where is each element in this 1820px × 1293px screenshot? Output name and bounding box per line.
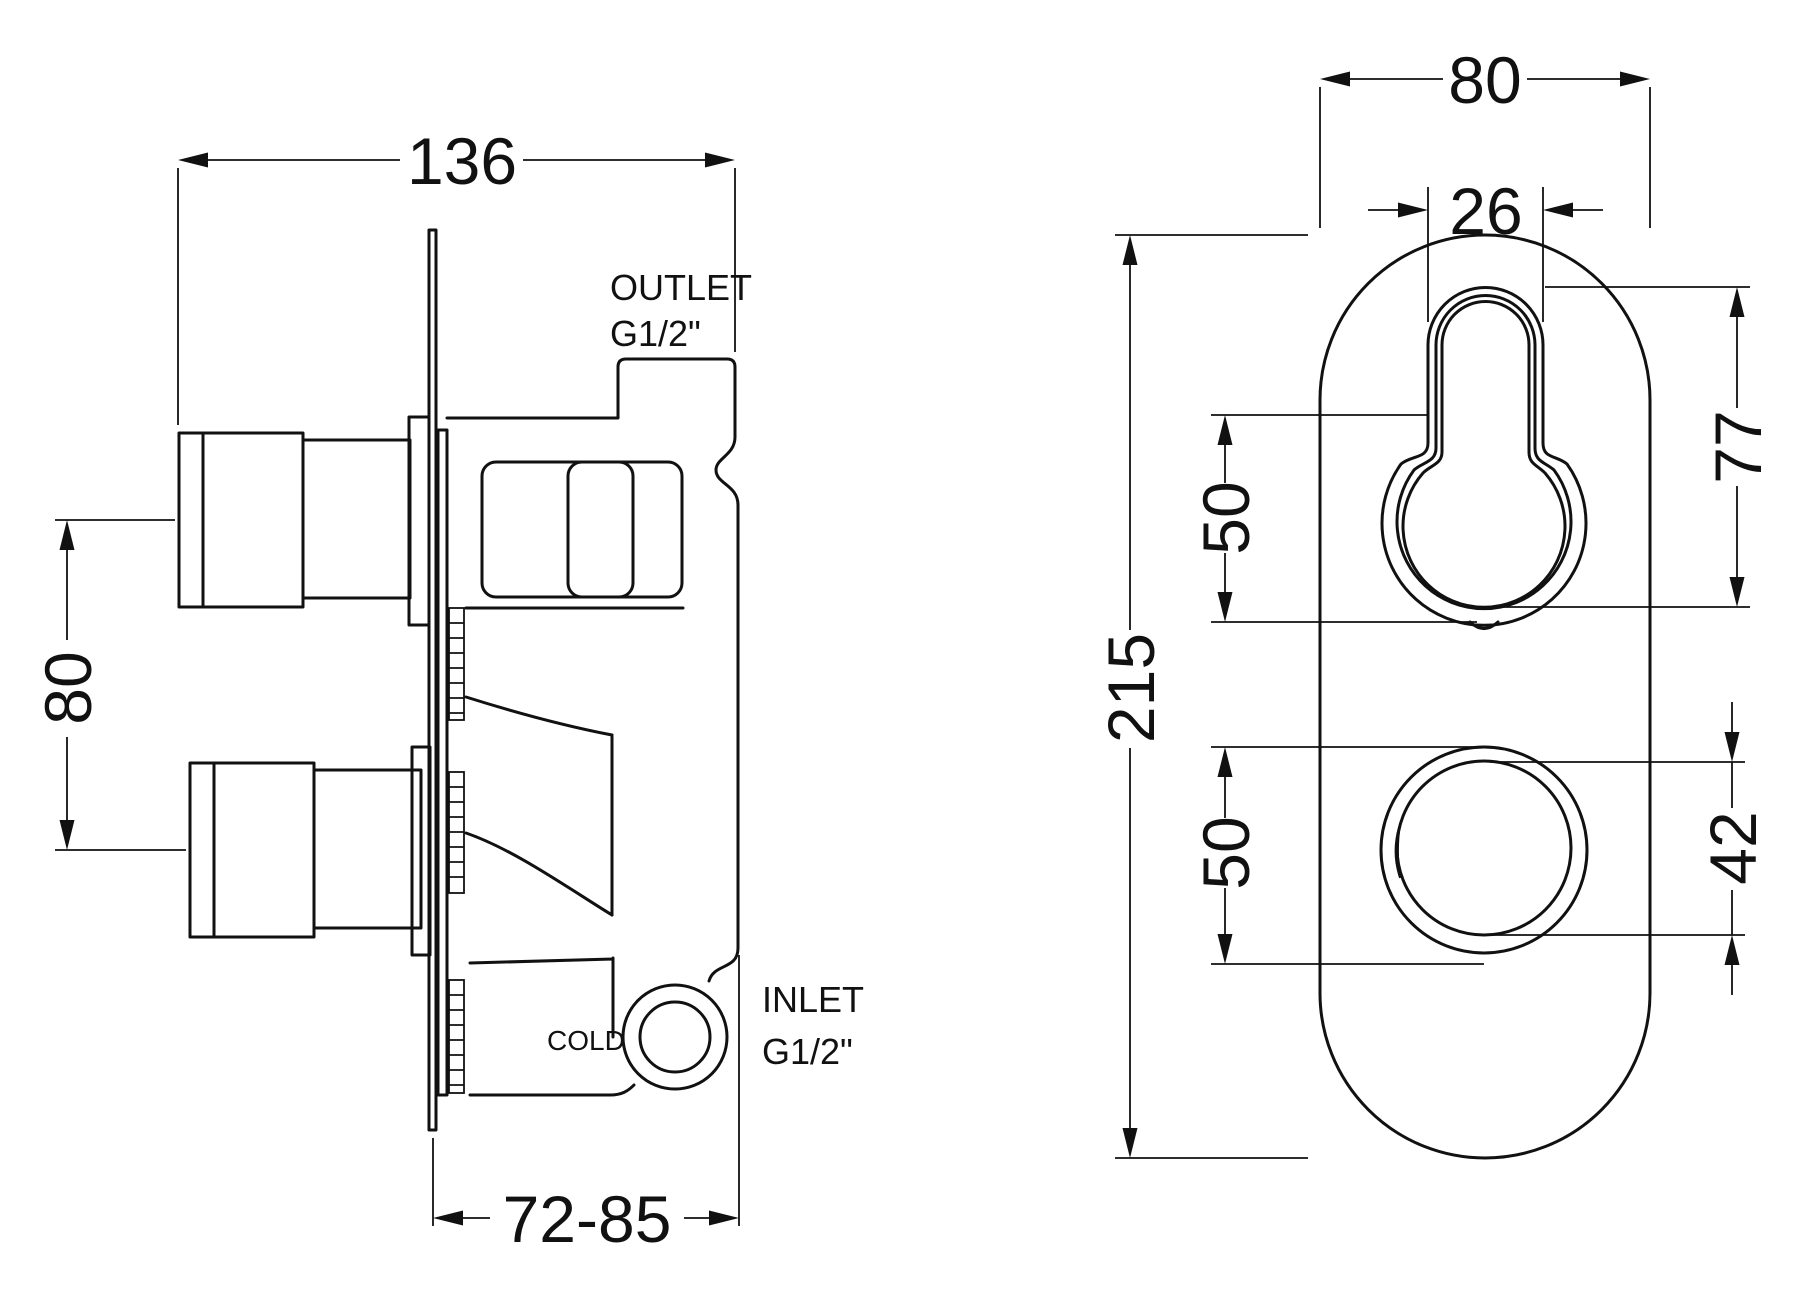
thread-ticks (449, 623, 464, 713)
bottom-control-outer-circle (1381, 747, 1587, 953)
cone-top-edge (466, 697, 612, 735)
thread-ticks (449, 995, 464, 1085)
thread-ticks (449, 787, 464, 877)
arrowhead-right (709, 1211, 739, 1226)
dimension-depth-range: 72-85 (433, 1138, 739, 1256)
arrowhead-right (1620, 72, 1650, 87)
outlet-label-line2: G1/2" (610, 313, 701, 354)
arrowhead-up-pointing (1725, 935, 1740, 965)
dimension-value: 50 (1189, 816, 1263, 889)
dimension-plate-height: 215 (1094, 235, 1308, 1158)
dimension-value: 77 (1701, 410, 1775, 483)
cartridge-housing-left (482, 462, 633, 597)
valve-dimension-drawing: OUTLET G1/2" INLET G1/2" COLD 136 80 (0, 0, 1820, 1293)
dimension-value: 136 (407, 124, 517, 198)
right-view-faceplate: 80 26 215 (1094, 43, 1775, 1158)
top-handle-stem (303, 440, 410, 598)
technical-drawing-page: OUTLET G1/2" INLET G1/2" COLD 136 80 (0, 0, 1820, 1293)
left-view-side-profile: OUTLET G1/2" INLET G1/2" COLD 136 80 (31, 124, 864, 1256)
arrowhead-up (1123, 235, 1138, 265)
arrowhead-up (1730, 287, 1745, 317)
arrowhead-down (1123, 1128, 1138, 1158)
arrowhead-right-pointing (1398, 203, 1428, 218)
dimension-slot-width: 26 (1368, 174, 1603, 322)
cold-label: COLD (547, 1025, 625, 1056)
top-handle-flange (409, 417, 429, 625)
inlet-label-line2: G1/2" (762, 1031, 853, 1072)
arrowhead-down (1218, 934, 1233, 964)
bottom-control-notch (1396, 824, 1401, 878)
thread-segment (449, 608, 464, 720)
dimension-value: 72-85 (503, 1182, 672, 1256)
arrowhead-down-pointing (1725, 732, 1740, 762)
outlet-port-outline (613, 359, 738, 981)
dimension-bottom-control-diameter: 42 (1490, 702, 1770, 995)
faceplate-outline (1320, 235, 1650, 1158)
top-handle-knob (179, 433, 303, 607)
mounting-plate (438, 430, 447, 1095)
arrowhead-up (1218, 415, 1233, 445)
thread-segment (449, 980, 464, 1093)
arrowhead-left (433, 1211, 463, 1226)
cartridge-thread-strip (449, 608, 464, 1093)
dimension-bottom-control-offset: 50 (1189, 747, 1484, 964)
dimension-value: 80 (31, 651, 105, 724)
inlet-port-inner-circle (640, 1002, 710, 1072)
dimension-value: 42 (1696, 811, 1770, 884)
cone-lower-edge (466, 833, 612, 915)
body-bottom-edge (470, 1085, 634, 1095)
arrowhead-left (178, 153, 208, 168)
arrowhead-down (1730, 577, 1745, 607)
bottom-handle-knob (190, 763, 314, 937)
arrowhead-left-pointing (1543, 203, 1573, 218)
bottom-control-inner-circle (1397, 761, 1571, 935)
dimension-value: 215 (1094, 633, 1168, 743)
arrowhead-up (1218, 747, 1233, 777)
dimension-value: 50 (1189, 481, 1263, 554)
dimension-handle-spacing: 80 (31, 520, 186, 850)
dimension-value: 80 (1448, 43, 1521, 117)
arrowhead-down (60, 820, 75, 850)
top-control-ring-outline (1382, 287, 1586, 625)
inlet-label-line1: INLET (762, 979, 864, 1020)
dimension-value: 26 (1449, 174, 1522, 248)
bottom-handle-stem (314, 770, 421, 928)
arrowhead-up (60, 520, 75, 550)
outlet-label-line1: OUTLET (610, 267, 752, 308)
arrowhead-left (1320, 72, 1350, 87)
arrowhead-down (1218, 592, 1233, 622)
wall-plate (429, 230, 436, 1130)
arrowhead-right (705, 153, 735, 168)
cartridge-housing-right (568, 462, 682, 597)
